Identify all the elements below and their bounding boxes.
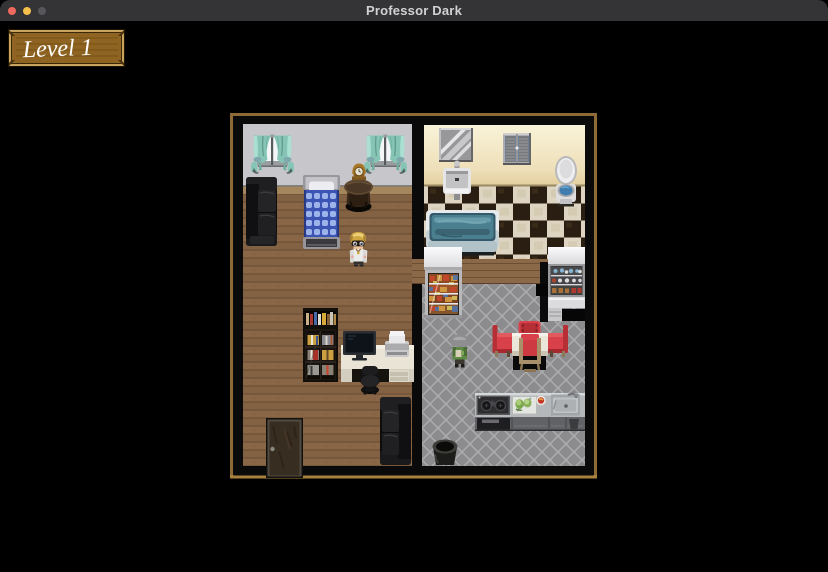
svg-text:Level 1: Level 1 bbox=[21, 35, 93, 63]
